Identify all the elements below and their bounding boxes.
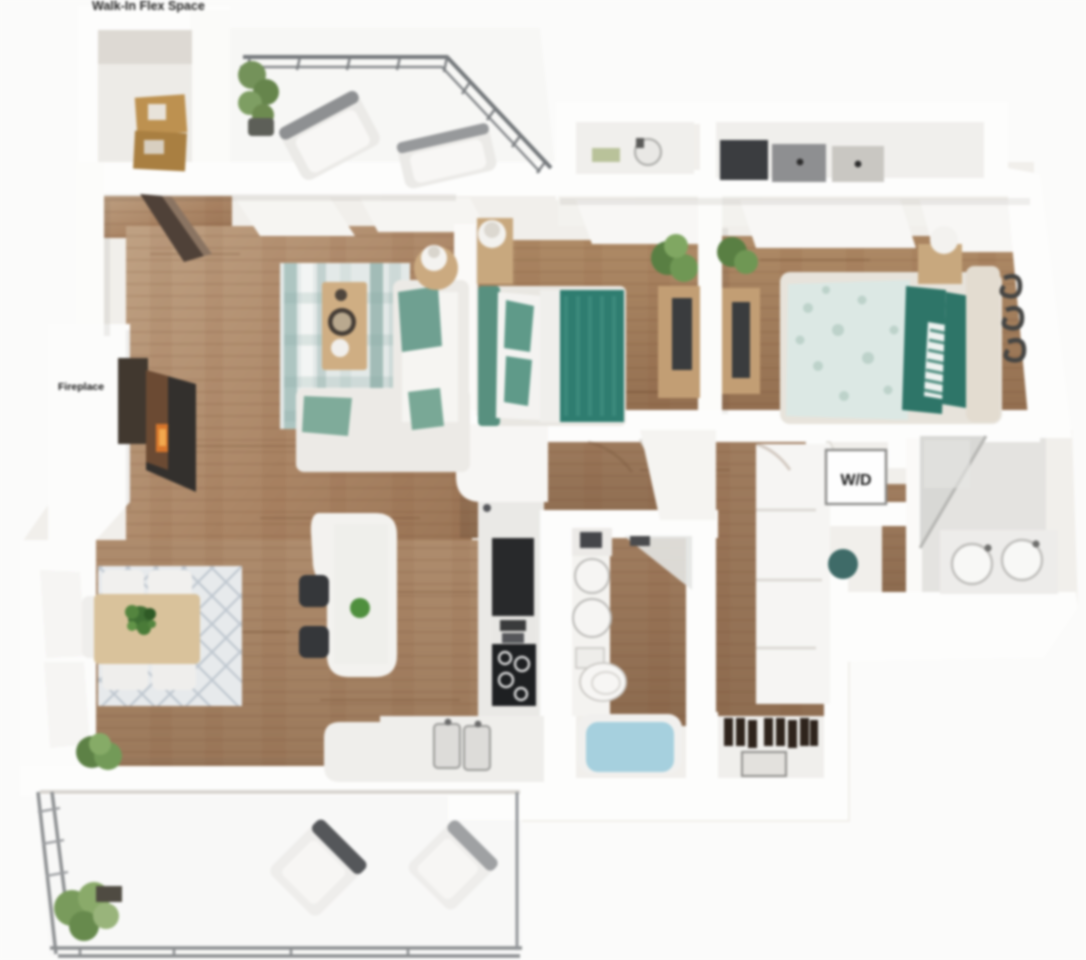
svg-text:Walk-In Flex Space: Walk-In Flex Space xyxy=(92,0,205,13)
svg-text:Fireplace: Fireplace xyxy=(58,381,104,393)
svg-text:W/D: W/D xyxy=(840,472,871,489)
